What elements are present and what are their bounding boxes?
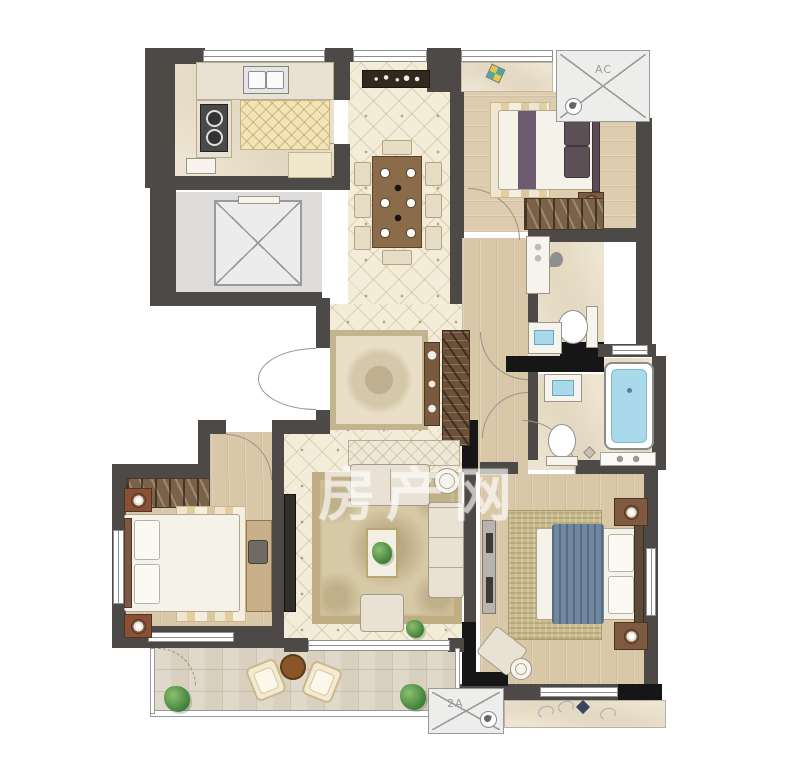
wall bbox=[174, 292, 322, 306]
window bbox=[353, 50, 427, 62]
pillow bbox=[134, 564, 160, 604]
console-table bbox=[424, 342, 440, 426]
balcony-table bbox=[280, 654, 306, 680]
wall bbox=[284, 638, 308, 652]
window bbox=[113, 530, 124, 604]
wall bbox=[334, 60, 350, 100]
wardrobe bbox=[524, 198, 604, 230]
wall bbox=[636, 118, 652, 232]
window bbox=[461, 50, 553, 62]
stove-icon bbox=[200, 104, 228, 152]
sink-icon bbox=[552, 380, 574, 396]
dining-chair bbox=[354, 226, 371, 250]
wall bbox=[174, 176, 350, 190]
bed-throw-blue bbox=[552, 524, 604, 624]
dining-chair bbox=[425, 194, 442, 218]
entry-door-swing bbox=[258, 379, 316, 410]
ac-platform-bottom: 2A bbox=[428, 688, 504, 734]
headboard bbox=[634, 524, 644, 624]
wall bbox=[150, 188, 176, 306]
kitchen-sink bbox=[243, 66, 289, 94]
loveseat bbox=[350, 464, 430, 506]
flower-bouquet bbox=[372, 542, 392, 564]
wall bbox=[450, 88, 464, 238]
kitchen-cabinet bbox=[288, 152, 332, 178]
toilet-icon bbox=[558, 310, 588, 344]
side-table bbox=[434, 468, 460, 494]
nightstand bbox=[614, 498, 648, 526]
dining-chair bbox=[382, 140, 412, 155]
sofa bbox=[428, 502, 464, 598]
pillow bbox=[134, 520, 160, 560]
wall bbox=[316, 298, 330, 348]
wall bbox=[480, 462, 518, 474]
fan-icon bbox=[565, 98, 582, 115]
shoe-cabinet bbox=[442, 330, 470, 446]
dining-chair bbox=[425, 162, 442, 186]
pillow bbox=[608, 534, 634, 572]
entry-door-swing bbox=[258, 348, 316, 379]
tv-console bbox=[482, 520, 496, 614]
fan-icon bbox=[480, 711, 497, 728]
bay-window-sill bbox=[461, 62, 553, 92]
wall bbox=[316, 410, 330, 434]
nightstand bbox=[124, 488, 152, 512]
wall bbox=[272, 432, 284, 642]
elevator-icon bbox=[214, 200, 302, 286]
balcony-railing bbox=[150, 648, 155, 714]
pillow bbox=[564, 146, 590, 178]
sink-icon bbox=[534, 330, 554, 345]
nightstand bbox=[124, 614, 152, 638]
faucet-icon bbox=[550, 252, 563, 267]
dining-chair bbox=[354, 194, 371, 218]
pillow bbox=[608, 576, 634, 614]
kitchen-island-counter bbox=[240, 100, 330, 150]
window bbox=[203, 50, 325, 62]
plant-icon bbox=[164, 686, 190, 712]
elevator-door bbox=[238, 196, 280, 204]
wall bbox=[145, 48, 175, 188]
window bbox=[646, 548, 656, 616]
plant-icon bbox=[406, 620, 424, 638]
headboard bbox=[124, 518, 132, 608]
wall bbox=[636, 232, 652, 356]
armchair bbox=[360, 594, 404, 632]
wall bbox=[427, 48, 461, 92]
wall bbox=[112, 464, 210, 478]
desk bbox=[246, 520, 272, 612]
dining-chair bbox=[425, 226, 442, 250]
ac-label: 2A bbox=[447, 697, 464, 710]
dining-sideboard bbox=[362, 70, 430, 88]
window bbox=[612, 345, 648, 355]
wall bbox=[462, 622, 476, 686]
wall bbox=[334, 144, 350, 182]
bath-shelf bbox=[600, 452, 656, 466]
dining-table bbox=[372, 156, 422, 248]
nightstand bbox=[614, 622, 648, 650]
window bbox=[148, 632, 234, 642]
kitchen-appliance bbox=[186, 158, 216, 174]
dining-chair bbox=[354, 162, 371, 186]
bathtub bbox=[604, 362, 654, 450]
ac-label: AC bbox=[595, 63, 612, 76]
foyer-rug bbox=[330, 330, 428, 430]
balcony-sliding-door bbox=[308, 640, 450, 651]
wall bbox=[618, 684, 662, 700]
floor-plan: AC 2A 房产网 bbox=[0, 0, 800, 771]
toilet-tank bbox=[546, 456, 578, 466]
tv-console bbox=[284, 494, 296, 612]
toilet-icon bbox=[548, 424, 576, 458]
desk-chair bbox=[248, 540, 268, 564]
side-table bbox=[510, 658, 532, 680]
daybed-bench bbox=[348, 440, 460, 466]
ac-platform-top: AC bbox=[556, 50, 650, 122]
dining-chair bbox=[382, 250, 412, 265]
wall bbox=[450, 238, 462, 304]
window bbox=[540, 687, 618, 697]
bed-runner bbox=[518, 111, 536, 189]
wall bbox=[464, 470, 476, 624]
plant-icon bbox=[400, 684, 426, 710]
laundry-counter bbox=[526, 236, 550, 294]
balcony-railing bbox=[150, 710, 460, 717]
